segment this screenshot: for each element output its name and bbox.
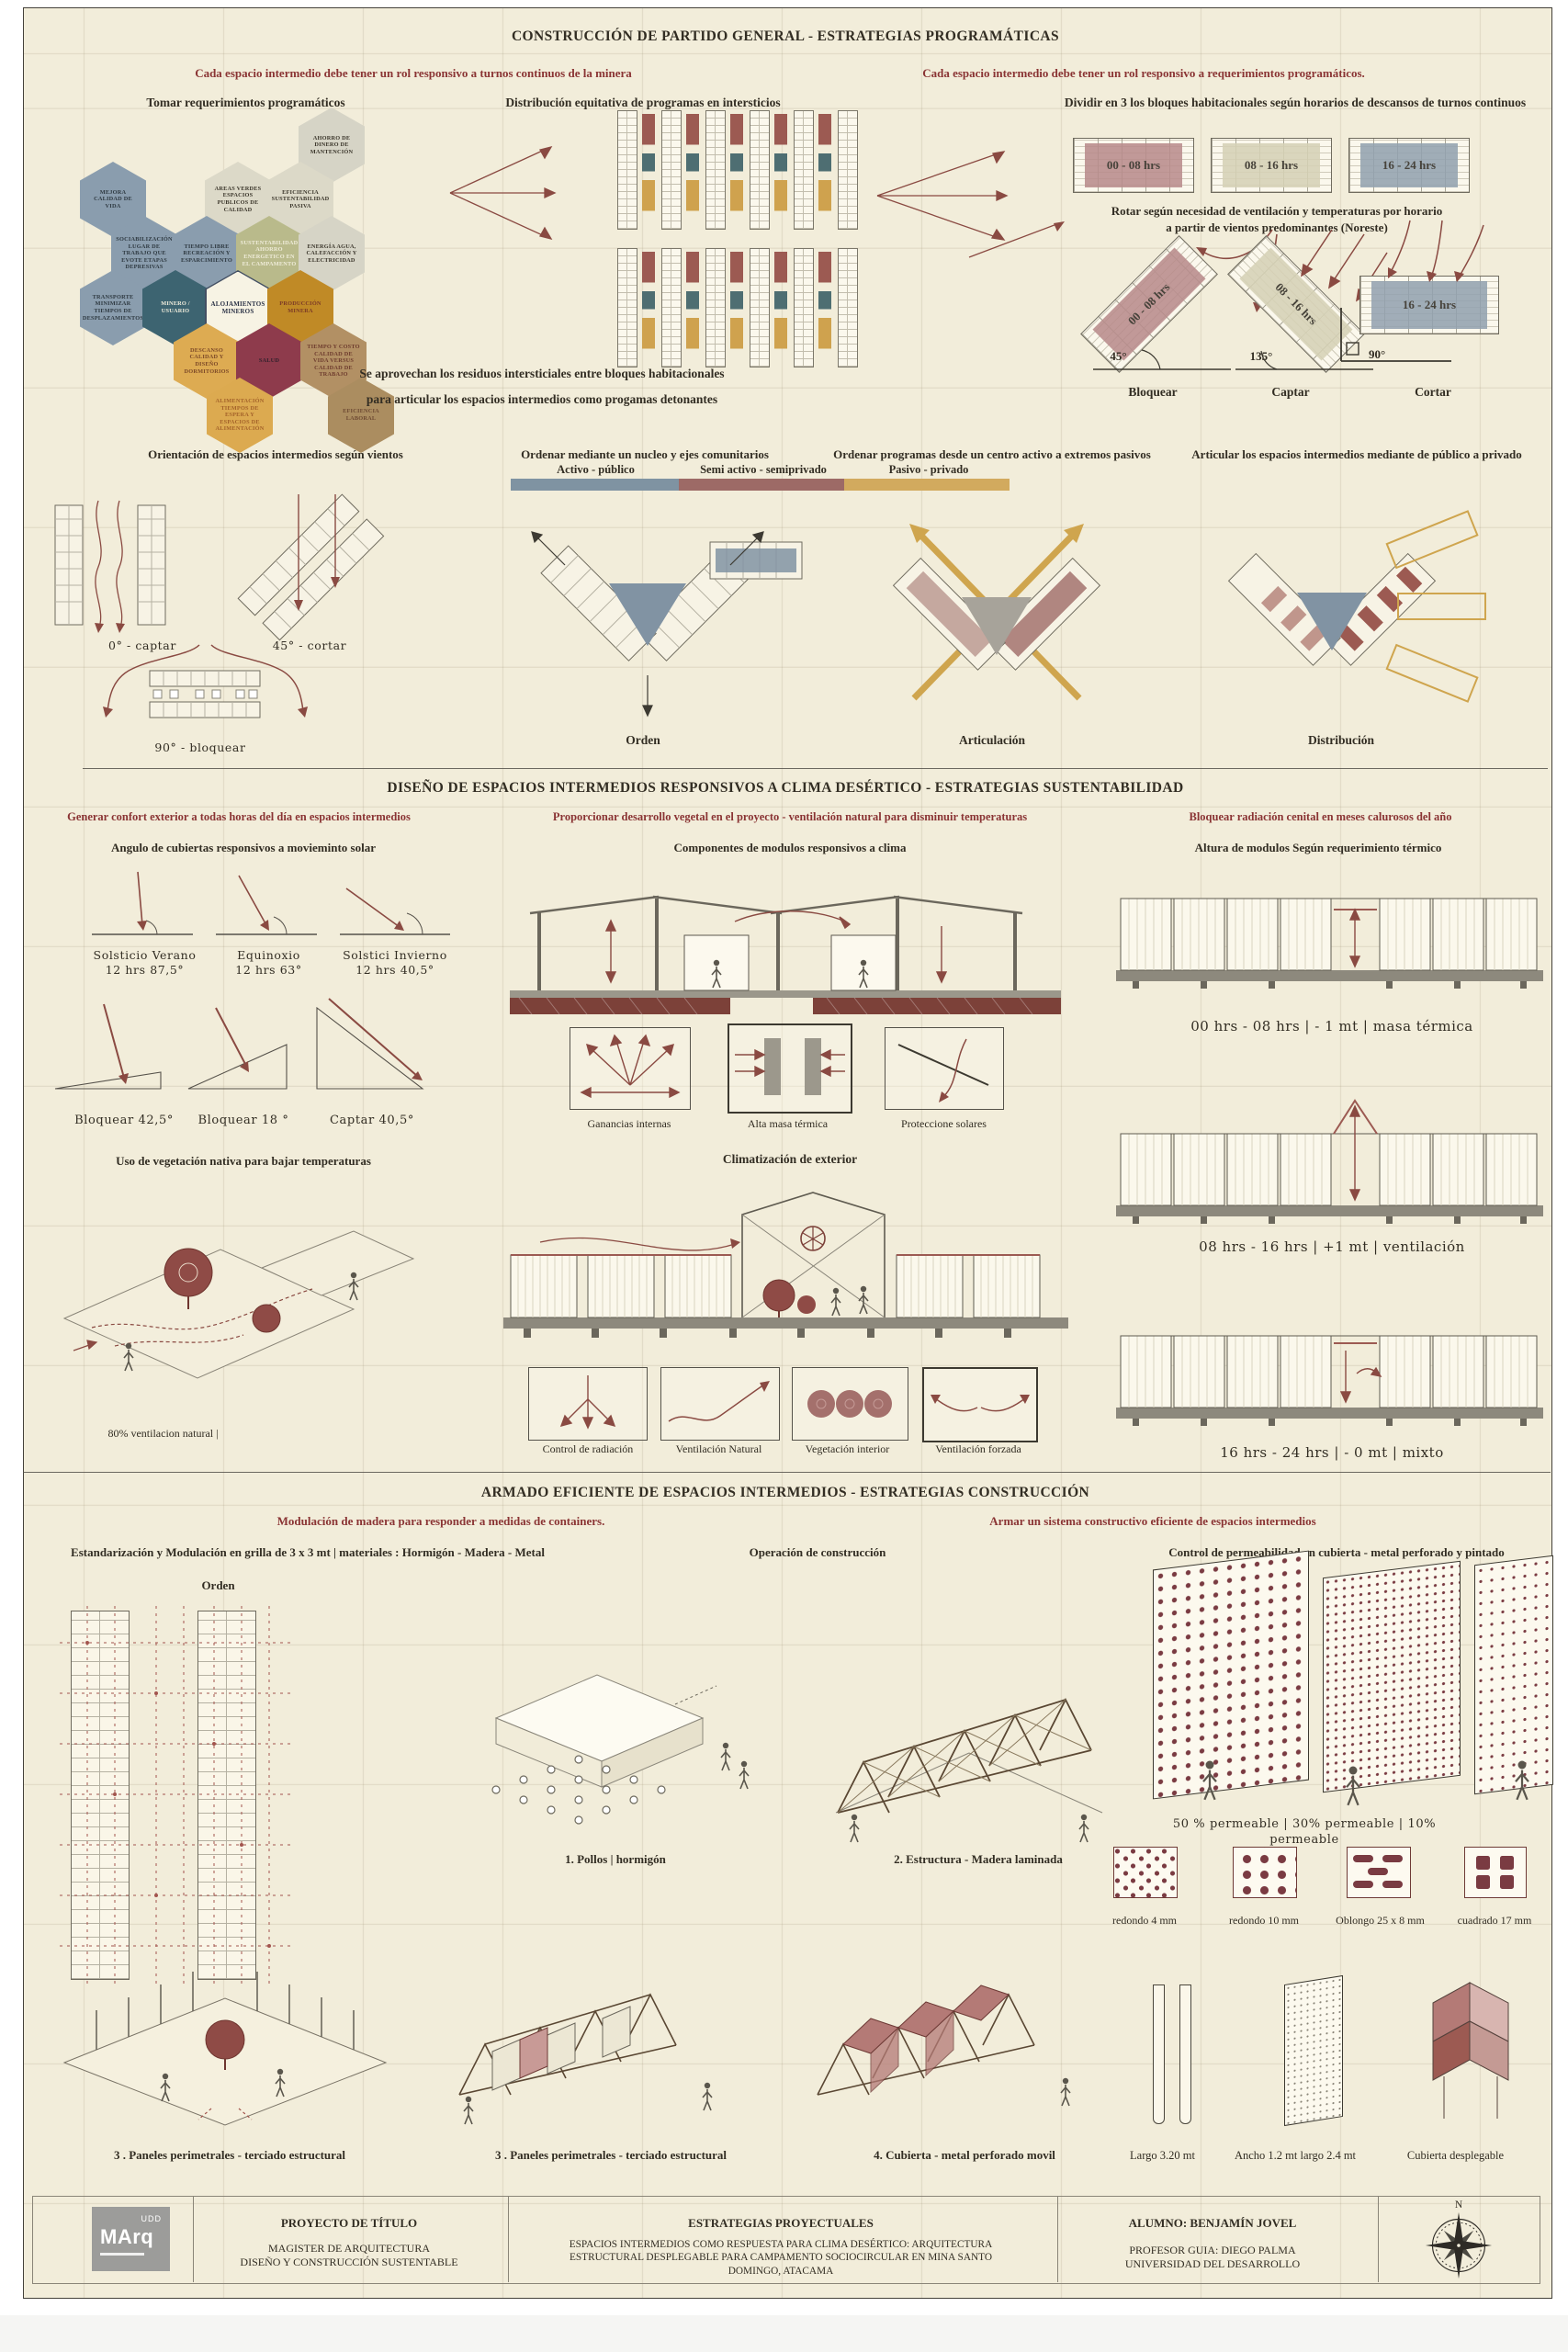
legend-label-pasivo: Pasivo - privado [846,462,1011,477]
section2-note-vegetal: Proporcionar desarrollo vegetal en el pr… [542,809,1038,824]
pattern-redondo-10 [1233,1847,1297,1898]
pattern-oblongo [1347,1847,1411,1898]
wind-label-90-bloquear: 90° - bloquear [136,741,265,755]
section3-header-operacion: Operación de construcción [680,1545,955,1561]
footer-divider-1 [193,2196,194,2282]
compass-rose-icon [1424,2211,1494,2280]
protecciones-solares-box [885,1027,1004,1110]
height-label-00-08: 00 hrs - 08 hrs | - 1 mt | masa térmica [1130,1018,1534,1035]
section2-title: DISEÑO DE ESPACIOS INTERMEDIOS RESPONSIV… [303,779,1268,797]
bottom-margin-strip [0,2315,1568,2352]
section-divider-1 [83,768,1548,769]
marq-logo-text: MArq [100,2225,153,2249]
roof-label-bloquear-18: Bloquear 18 ° [175,1114,312,1129]
udd-logo-text: UDD [141,2214,163,2223]
paneles-b-diagram [432,1916,744,2127]
plank-left [1153,1984,1165,2124]
height-section-08-16 [1116,1084,1543,1229]
roof-diagram-captar-40 [303,997,436,1100]
pollos-diagram [441,1649,799,1847]
clim-label-control: Control de radiación [519,1442,657,1456]
sun-label-invierno: Solstici Invierno12 hrs 40,5° [326,948,464,978]
dim-label-cubierta: Cubierta desplegable [1389,2148,1522,2163]
section3-note-right: Armar un sistema constructivo eficiente … [900,1514,1405,1530]
wind-arrow-cortar [1373,220,1511,308]
shift-block-08-16: 08 - 16 hrs [1211,138,1332,193]
distribution-title: Distribución equitativa de programas en … [432,95,854,110]
footer-col1-text: MAGISTER DE ARQUITECTURA DISEÑO Y CONSTR… [197,2242,501,2270]
cubierta-diagram [790,1916,1102,2127]
sun-label-equinoxio: Equinoxio12 hrs 63° [207,948,331,978]
interior-vegetation-icon [793,1368,908,1440]
residuos-note-line2: para articular los espacios intermedios … [257,391,827,407]
hexagon-label: EFICIENCIA LABORAL [328,408,394,422]
clim-label-forzada: Ventilación forzada [909,1442,1047,1456]
sun-angle-equinoxio [211,868,321,942]
hexagon-label: DESCANSO CALIDAD Y DISEÑO DORMITORIOS [174,347,240,375]
permeability-note: 50 % permeable | 30% permeable | 10% per… [1167,1817,1442,1848]
pattern-redondo-4 [1113,1847,1178,1898]
thermal-mass-icon [729,1025,851,1112]
step-label-paneles-a: 3 . Paneles perimetrales - terciado estr… [73,2148,386,2164]
arrow-fan-left [450,138,560,248]
perforated-panels-diagram [1153,1543,1552,1815]
marq-logo: UDD MArq [92,2207,170,2271]
wind-diagram-captar [41,501,179,634]
section3-title: ARMADO EFICIENTE DE ESPACIOS INTERMEDIOS… [326,1484,1245,1502]
pattern-cuadrado [1464,1847,1527,1898]
section2-note-confort: Generar confort exterior a todas horas d… [23,809,455,824]
shift-block-16-24: 16 - 24 hrs [1348,138,1470,193]
arrow-to-rotations [969,216,1070,262]
modulation-grid-diagram [60,1606,294,1987]
step-label-pollos: 1. Pollos | hormigón [537,1852,694,1868]
hex-cluster-diagram: AHORRO DE DINERO DE MANTENCIÓN MEJORA CA… [51,106,446,473]
rotate-note-line1: Rotar según necesidad de ventilación y t… [1047,204,1506,220]
shift-label: 08 - 16 hrs [1245,158,1298,173]
vegetacion-interior-box [792,1367,908,1441]
dim-label-largo: Largo 3.20 mt [1110,2148,1215,2163]
footer-col3-text: PROFESOR GUIA: DIEGO PALMA UNIVERSIDAD D… [1089,2244,1337,2272]
module-components-drawing [510,862,1061,1027]
divide-title: Dividir en 3 los bloques habitacionales … [1038,95,1552,110]
wind-diagram-bloquear [96,645,312,737]
footer-col2-text: ESPACIOS INTERMEDIOS COMO RESPUESTA PARA… [542,2238,1020,2278]
roof-diagram-bloquear-42 [51,997,170,1100]
step-label-paneles-b: 3 . Paneles perimetrales - terciado estr… [455,2148,767,2164]
height-label-08-16: 08 hrs - 16 hrs | +1 mt | ventilación [1130,1238,1534,1256]
hexagon-label: AREAS VERDES ESPACIOS PUBLICOS DE CALIDA… [205,186,271,213]
component-label-ganancias: Ganancias internas [570,1117,689,1131]
orden-diagram [501,492,795,726]
perf-label-redondo10: redondo 10 mm [1209,1914,1319,1928]
vegetation-note: 80% ventilacion natural | [87,1427,239,1441]
ventilacion-natural-box [660,1367,780,1441]
articulacion-diagram [850,492,1144,726]
hexagon-label: PRODUCCIÓN MINERA [267,300,333,314]
section1-note-right: Cada espacio intermedio debe tener un ro… [827,66,1461,82]
sun-label-verano: Solsticio Verano12 hrs 87,5° [78,948,211,978]
hexagon-label: ALOJAMIENTOS MINEROS [205,300,270,316]
legend-label-semiactivo: Semi activo - semiprivado [681,462,846,477]
row2-header-articular: Articular los espacios intermedios media… [1168,447,1545,463]
legend-swatch-activo [511,479,679,491]
roof-diagram-bloquear-18 [184,997,294,1100]
orden-grid-label: Orden [170,1578,266,1594]
hexagon-label: EFICIENCIA SUSTENTABILIDAD PASIVA [265,189,336,210]
natural-ventilation-icon [661,1368,779,1440]
height-section-00-08 [1116,871,1543,992]
hexagon-label: SOCIABILIZACIÓN LUGAR DE TRABAJO QUE EVO… [109,236,178,271]
ganancias-internas-box [570,1027,691,1110]
footer-divider-2 [508,2196,509,2282]
climatizacion-drawing [503,1178,1068,1354]
row2-header-orientacion: Orientación de espacios intermedios segú… [69,447,482,463]
footer-col2-title: ESTRATEGIAS PROYECTUALES [643,2216,919,2232]
row2-header-nucleo: Ordenar mediante un nucleo y ejes comuni… [484,447,806,463]
folded-cover-diagram [1415,1964,1534,2125]
component-label-masa: Alta masa térmica [726,1117,850,1131]
hexagon-label: SALUD [253,357,286,365]
perf-label-oblongo: Oblongo 25 x 8 mm [1323,1914,1438,1928]
logo-caption-bar [100,2253,144,2256]
legend-bar [511,479,1010,491]
radiation-control-icon [529,1368,647,1440]
section2-note-radiacion: Bloquear radiación cenital en meses calu… [1167,809,1474,824]
legend-swatch-semiactivo [679,479,844,491]
poster-page: CONSTRUCCIÓN DE PARTIDO GENERAL - ESTRAT… [0,0,1568,2352]
climatizacion-title: Climatización de exterior [625,1151,955,1167]
clim-label-vegetacion: Vegetación interior [776,1442,919,1456]
action-label-bloquear: Bloquear [1089,384,1217,400]
shift-label: 00 - 08 hrs [1107,158,1160,173]
estructura-diagram [818,1643,1121,1847]
strategy-label-articulacion: Articulación [928,732,1056,748]
sun-angle-verano [87,868,197,942]
wind-diagram-cortar [225,494,395,634]
residuos-note-line1: Se aprovechan los residuos intersticiale… [257,366,827,381]
roof-label-captar-40: Captar 40,5° [303,1114,441,1129]
hexagon-label: AHORRO DE DINERO DE MANTENCIÓN [299,135,365,156]
paneles-a-diagram [55,1948,395,2127]
step-label-estructura: 2. Estructura - Madera laminada [854,1852,1102,1868]
footer-divider-4 [1378,2196,1379,2282]
angle-label-135: 135° [1238,349,1284,365]
section2-header-componentes: Componentes de modulos responsivos a cli… [625,841,955,856]
section-divider-2 [23,1472,1551,1473]
action-label-captar: Captar [1226,384,1355,400]
sun-angle-invierno [335,868,455,942]
hexagon-label: MINERO / USUARIO [142,300,209,314]
footer-divider-3 [1057,2196,1058,2282]
hexagon-label: SUSTENTABILIDAD AHORRO ENERGETICO EN EL … [234,240,305,267]
angle-label-90: 90° [1369,347,1410,363]
row2-header-centro-activo: Ordenar programas desde un centro activo… [813,447,1171,463]
section3-note-left: Modulación de madera para responder a me… [165,1514,716,1530]
legend-swatch-pasivo [844,479,1010,491]
shift-block-00-08: 00 - 08 hrs [1073,138,1194,193]
section3-header-estandarizacion: Estandarización y Modulación en grilla d… [23,1545,592,1561]
section2-header-altura: Altura de modulos Según requerimiento té… [1139,841,1497,856]
hexagon-label: TRANSPORTE MINIMIZAR TIEMPOS DE DESPLAZA… [76,294,150,322]
component-label-protecciones: Proteccione solares [877,1117,1010,1131]
forced-ventilation-icon [924,1369,1036,1441]
vegetation-title: Uso de vegetación nativa para bajar temp… [69,1154,418,1170]
height-label-16-24: 16 hrs - 24 hrs | - 0 mt | mixto [1130,1444,1534,1462]
strategy-label-orden: Orden [579,732,707,748]
hexagon-label: TIEMPO LIBRE RECREACIÓN Y ESPARCIMIENTO [174,243,240,265]
distribucion-diagram [1194,492,1497,726]
clim-label-natural: Ventilación Natural [648,1442,790,1456]
modulation-grid-overlay [60,1606,294,1987]
dim-label-ancho: Ancho 1.2 mt largo 2.4 mt [1222,2148,1369,2163]
footer-col1-title: PROYECTO DE TÍTULO [220,2216,478,2232]
hexagon-label: MEJORA CALIDAD DE VIDA [80,189,146,210]
strategy-label-distribucion: Distribución [1277,732,1405,748]
step-label-cubierta: 4. Cubierta - metal perforado movil [827,2148,1102,2164]
shift-label: 16 - 24 hrs [1382,158,1436,173]
ventilacion-forzada-box [922,1367,1038,1442]
panel-figures [1153,1543,1552,1815]
perf-label-redondo4: redondo 4 mm [1089,1914,1200,1928]
footer-col3-title: ALUMNO: BENJAMÍN JOVEL [1084,2216,1341,2232]
hexagon-label: ENERGÍA AGUA, CALEFACCIÓN Y ELECTRICIDAD [299,243,365,265]
angle-label-45: 45° [1098,349,1139,365]
section1-title: CONSTRUCCIÓN DE PARTIDO GENERAL - ESTRAT… [367,28,1203,46]
solar-protection-icon [886,1028,1003,1109]
height-section-16-24 [1116,1286,1543,1431]
shift-label: 00 - 08 hrs [1125,280,1173,328]
plank-right [1179,1984,1191,2124]
internal-gains-icon [570,1028,690,1109]
perf-label-cuadrado: cuadrado 17 mm [1438,1914,1551,1928]
action-label-cortar: Cortar [1369,384,1497,400]
vegetation-diagram [51,1181,418,1415]
alta-masa-termica-box [728,1023,852,1114]
section1-note-left: Cada espacio intermedio debe tener un ro… [92,66,735,82]
section2-header-angulo: Angulo de cubiertas responsivos a moviem… [55,841,432,856]
legend-label-activo: Activo - público [511,462,681,477]
panel-ancho [1284,1975,1343,2126]
interstitial-plan-diagram [617,110,858,367]
control-radiacion-box [528,1367,648,1441]
